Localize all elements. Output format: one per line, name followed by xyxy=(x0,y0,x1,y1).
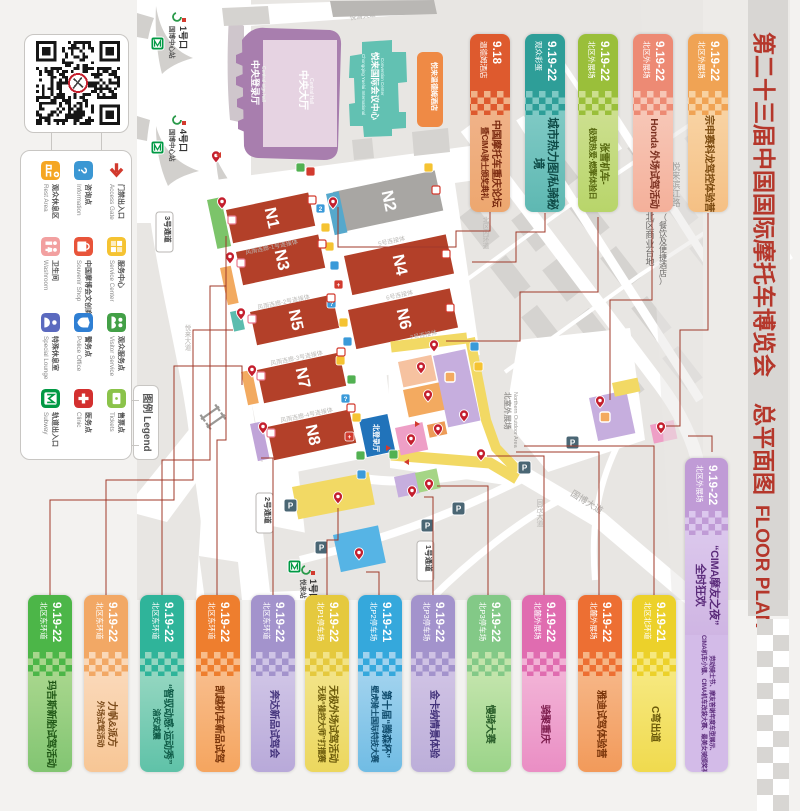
svg-text:?: ? xyxy=(76,167,90,175)
